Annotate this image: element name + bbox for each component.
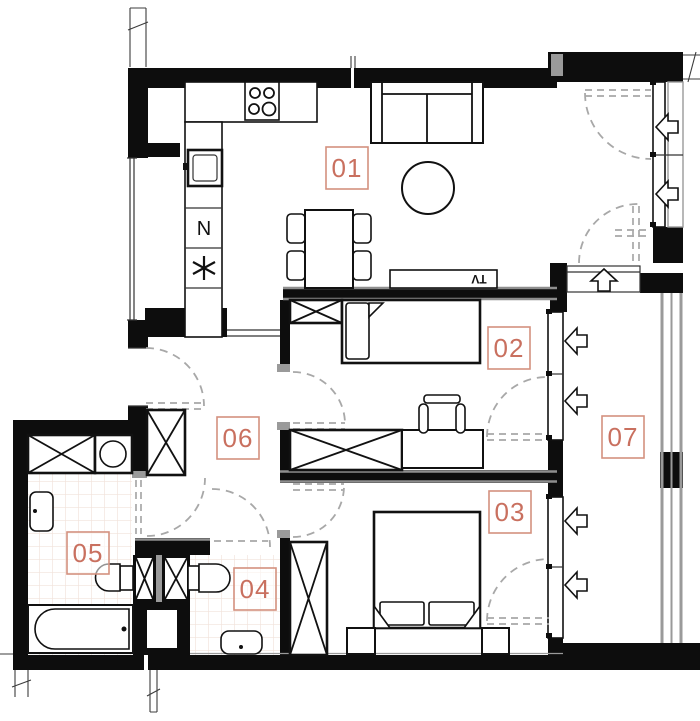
nightstand xyxy=(347,628,375,654)
window-opening-arrow-icon xyxy=(565,388,587,414)
wall-washbasin xyxy=(30,492,53,531)
installation-shafts xyxy=(133,555,190,655)
room-label-07: 07 xyxy=(602,416,644,458)
windows xyxy=(546,80,683,643)
room-label-06: 06 xyxy=(217,417,259,459)
svg-text:05: 05 xyxy=(73,538,104,568)
wardrobe xyxy=(290,300,342,323)
room-label-04: 04 xyxy=(234,568,276,610)
room-label-02: 02 xyxy=(488,327,530,369)
room-label-05: 05 xyxy=(67,532,109,574)
living-room: TV xyxy=(287,82,497,288)
pillow xyxy=(380,602,424,625)
nightstand xyxy=(482,628,509,654)
faucet-icon xyxy=(183,163,188,170)
desk xyxy=(402,430,483,468)
bedroom03-window-swing xyxy=(487,559,549,624)
svg-text:01: 01 xyxy=(332,153,363,183)
single-bed xyxy=(342,300,480,363)
floor-plan-drawing: N TV xyxy=(0,0,700,721)
svg-text:03: 03 xyxy=(495,497,526,527)
window-opening-arrow-icon xyxy=(565,508,587,534)
bedroom02-door xyxy=(293,372,345,429)
toilet-door xyxy=(212,489,270,547)
hall-wardrobe xyxy=(147,410,185,475)
svg-text:06: 06 xyxy=(223,423,254,453)
dining-set xyxy=(287,210,371,288)
bedroom03-window xyxy=(546,494,587,638)
washing-machine xyxy=(28,435,95,473)
washbasin xyxy=(221,631,262,654)
entrance-door xyxy=(128,348,204,409)
round-rug xyxy=(402,162,454,214)
pillow xyxy=(346,303,369,359)
wardrobe xyxy=(290,542,327,655)
svg-text:02: 02 xyxy=(494,333,525,363)
bathroom-door xyxy=(136,478,205,536)
bedroom03 xyxy=(290,512,509,655)
bathtub xyxy=(28,605,133,653)
appliance-letter: N xyxy=(197,218,211,240)
bedroom03-door xyxy=(293,484,344,537)
kitchen-window xyxy=(127,158,137,320)
room-label-03: 03 xyxy=(489,491,531,533)
living-room-window xyxy=(650,80,683,227)
floor-plan: N TV xyxy=(0,0,700,721)
sofa xyxy=(371,82,483,143)
toilet xyxy=(188,564,230,592)
pillow xyxy=(429,602,474,625)
balcony-door-threshold xyxy=(567,266,640,292)
window-opening-arrow-icon xyxy=(565,328,587,354)
desk-chair xyxy=(419,395,465,433)
dining-table xyxy=(305,210,353,288)
washbasin-counter xyxy=(95,435,132,473)
double-bed xyxy=(374,512,480,628)
living-window-swing xyxy=(585,90,651,236)
tv-cabinet: TV xyxy=(390,270,497,288)
svg-text:04: 04 xyxy=(240,574,271,604)
svg-text:07: 07 xyxy=(608,422,639,452)
long-dresser xyxy=(290,430,402,470)
tv-label: TV xyxy=(471,272,486,286)
bedroom02-window xyxy=(546,309,587,440)
room-label-01: 01 xyxy=(326,147,368,189)
living-balcony-door-swing xyxy=(579,204,639,263)
faucet-icon xyxy=(122,627,127,632)
bedroom02-window-swing xyxy=(487,377,547,440)
window-opening-arrow-icon xyxy=(565,572,587,598)
bedroom02 xyxy=(290,300,483,470)
